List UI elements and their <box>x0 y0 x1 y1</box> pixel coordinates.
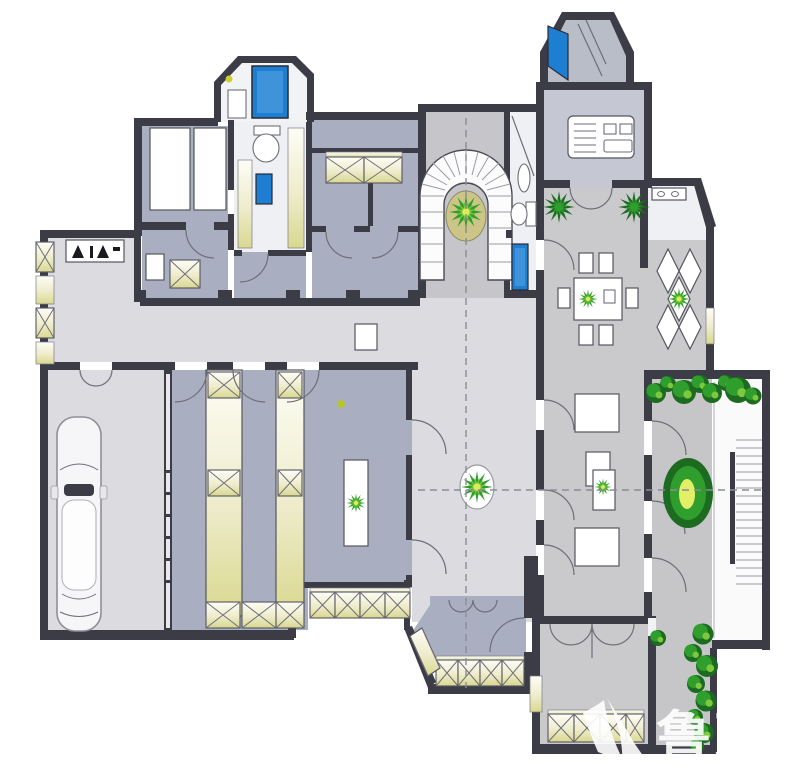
chair <box>626 288 638 308</box>
bathtub-inner <box>257 71 283 113</box>
pedestal-basin <box>518 164 530 192</box>
windshield <box>64 484 94 496</box>
sofa2 <box>575 528 619 566</box>
stairs-floor <box>714 379 762 641</box>
placemat <box>604 290 615 303</box>
bay-room-floor <box>430 596 526 662</box>
study-closet-row <box>326 152 402 183</box>
sofa <box>575 394 619 432</box>
accent-dot2 <box>337 400 345 408</box>
oval-planter <box>663 458 713 528</box>
glass-partition-1 <box>206 370 242 628</box>
wash-basin-icon <box>256 174 272 204</box>
entrance-console <box>652 188 686 200</box>
hall-floor <box>412 298 536 622</box>
chair <box>599 253 613 273</box>
glass-partition-2 <box>276 370 304 628</box>
accent-dot <box>226 76 233 83</box>
bath-mark <box>506 230 512 238</box>
radiator <box>355 324 377 350</box>
car-roof <box>62 500 96 590</box>
stair-rail <box>730 452 735 564</box>
side-cabinet <box>146 254 164 280</box>
chair <box>579 253 593 273</box>
floor-plan-canvas: 鲁班 <box>0 0 800 784</box>
chair <box>579 325 593 345</box>
shoe-cabinet <box>66 240 124 262</box>
mirror-right <box>100 486 107 499</box>
mirror-left <box>51 486 58 499</box>
car <box>51 417 107 631</box>
chair <box>558 288 570 308</box>
left-wall-windows <box>36 242 54 364</box>
wardrobe-icon <box>150 128 190 210</box>
cabinet-glyph4 <box>113 247 120 251</box>
floor-plan: 鲁班 <box>0 0 800 784</box>
garage-divider-core <box>166 374 170 628</box>
kitchen-stove <box>568 116 634 158</box>
diamond-room-window <box>706 308 714 344</box>
cabinet-glyph2 <box>90 246 93 258</box>
south-window-row <box>310 588 410 618</box>
toilet2-icon <box>511 203 527 225</box>
bath-shelf <box>228 90 246 118</box>
wardrobe-icon2 <box>194 128 226 210</box>
chair <box>599 325 613 345</box>
watermark-text: 鲁班 <box>656 706 774 771</box>
study-floor <box>312 118 418 298</box>
bath-door-panel2 <box>288 128 304 248</box>
shower-inner <box>515 248 525 286</box>
bath-door-panel <box>238 160 252 248</box>
toilet-icon <box>253 134 279 162</box>
